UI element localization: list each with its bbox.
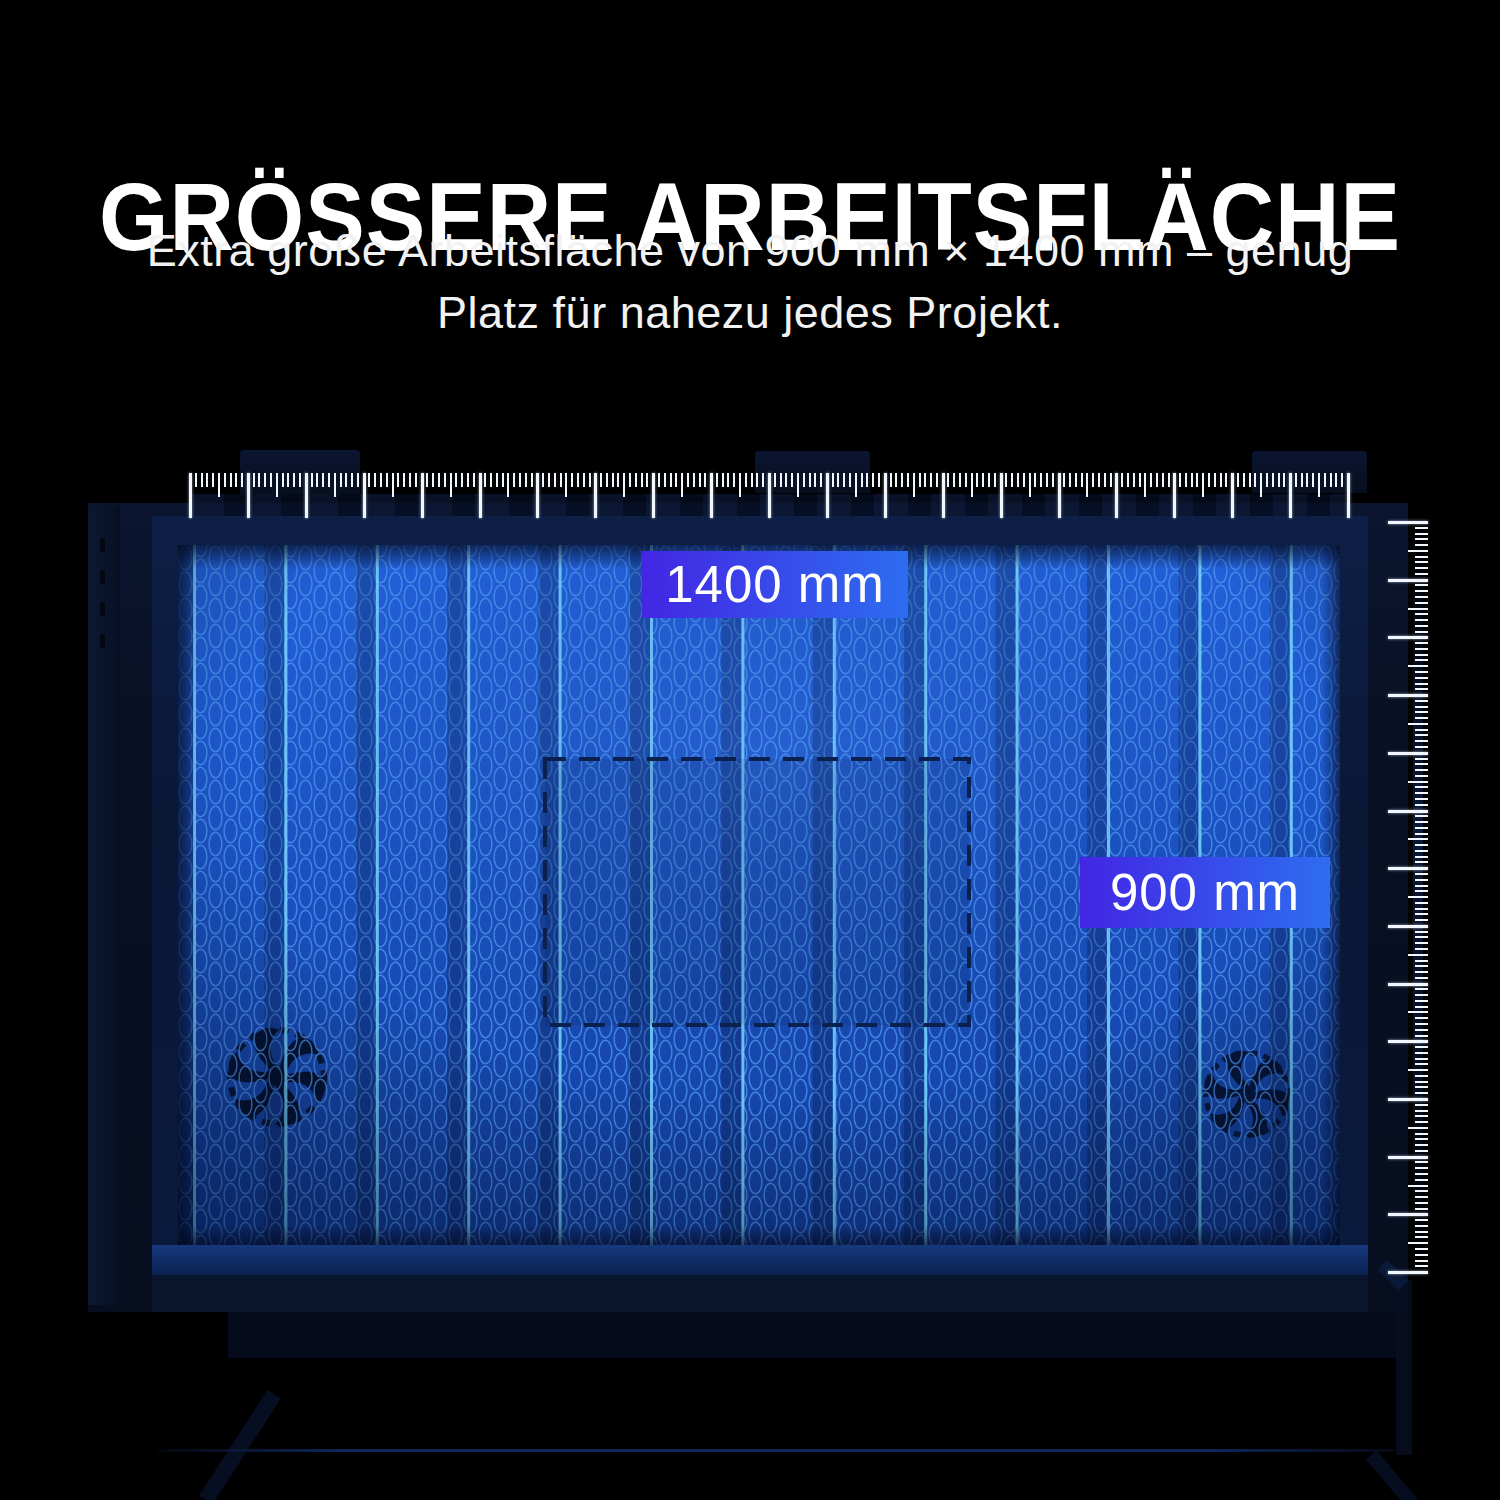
machine-foot-right — [1366, 1450, 1424, 1500]
page-root: GRÖSSERE ARBEITSFLÄCHE Extra große Arbei… — [0, 0, 1500, 1500]
subtitle-line-2: Platz für nahezu jedes Projekt. — [0, 282, 1500, 344]
screw-slot — [100, 602, 105, 616]
top-ruler — [189, 473, 1349, 519]
bed-frame-bottom — [152, 1245, 1368, 1275]
width-dimension-label: 1400 mm — [642, 551, 908, 618]
work-area-outline — [545, 759, 969, 1025]
right-ruler — [1386, 521, 1428, 1275]
machine-foot-left — [199, 1390, 281, 1500]
screw-slot — [100, 570, 105, 584]
machine-underbody — [228, 1312, 1398, 1358]
page-subtitle: Extra große Arbeitsfläche von 900 mm × 1… — [0, 220, 1500, 344]
height-dimension-label: 900 mm — [1080, 857, 1330, 928]
deck-bottom — [152, 1275, 1368, 1312]
screw-slot — [100, 634, 105, 648]
machine-base-edge — [158, 1449, 1394, 1452]
subtitle-line-1: Extra große Arbeitsfläche von 900 mm × 1… — [0, 220, 1500, 282]
machine-left-edge — [88, 505, 120, 1305]
machine-right-edge — [1396, 1280, 1412, 1455]
screw-slot — [100, 538, 105, 552]
